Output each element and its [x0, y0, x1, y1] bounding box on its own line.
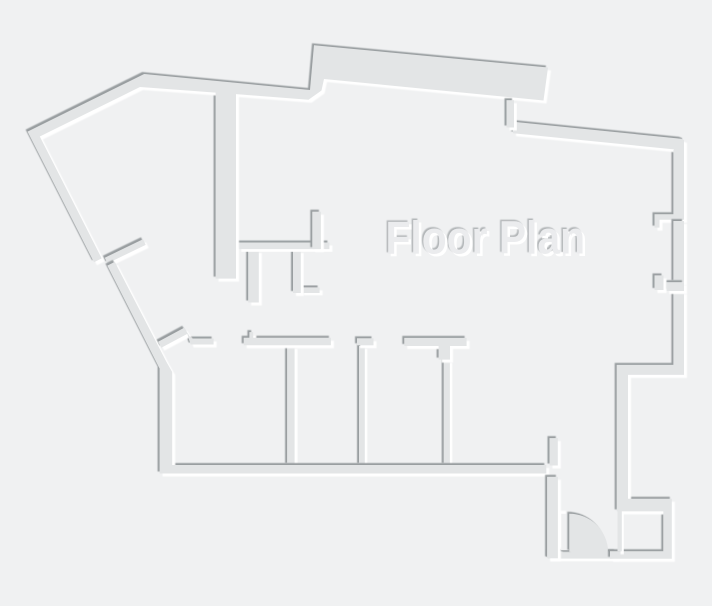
svg-text:Floor Plan: Floor Plan — [386, 212, 586, 264]
